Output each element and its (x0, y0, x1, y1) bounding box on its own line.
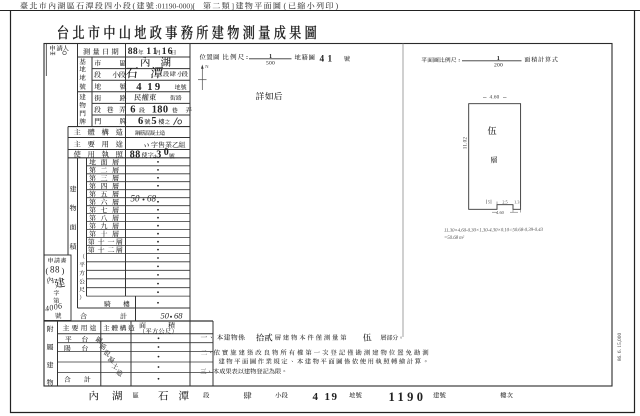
svg-text:): ) (336, 2, 339, 11)
svg-text:88: 88 (128, 46, 138, 57)
svg-text:(: ( (133, 2, 136, 11)
svg-text::01190-000)[: :01190-000)[ (156, 2, 196, 11)
svg-text:1190: 1190 (389, 390, 427, 404)
svg-text::: : (458, 58, 460, 64)
svg-text:1: 1 (269, 53, 272, 60)
svg-text:=50.68 m²: =50.68 m² (444, 235, 465, 241)
svg-text:]: ] (232, 2, 235, 11)
svg-text:86. 6. 15,000: 86. 6. 15,000 (617, 333, 623, 362)
svg-text:3: 3 (156, 149, 161, 160)
svg-text:4: 4 (313, 391, 319, 403)
svg-text:500: 500 (266, 61, 275, 67)
svg-text:1: 1 (147, 82, 152, 93)
svg-text:50: 50 (161, 311, 170, 321)
svg-text:4: 4 (136, 82, 142, 93)
svg-text:68: 68 (174, 311, 183, 321)
svg-text:11.30×4.60-0.30×1.30-4.30×0.10: 11.30×4.60-0.30×1.30-4.30×0.10=50.68-0.3… (444, 228, 544, 234)
svg-text:1: 1 (328, 54, 333, 64)
svg-text:50: 50 (131, 194, 141, 204)
svg-text:11: 11 (146, 46, 159, 57)
svg-text:9: 9 (332, 391, 338, 403)
svg-text:88: 88 (130, 149, 141, 160)
svg-text:6: 6 (130, 105, 135, 116)
svg-text:200: 200 (494, 63, 503, 69)
svg-text:88: 88 (50, 265, 60, 275)
svg-text:11.02: 11.02 (462, 137, 468, 150)
svg-text:4: 4 (320, 54, 325, 64)
svg-text:6: 6 (138, 116, 143, 127)
svg-text:180: 180 (152, 105, 169, 116)
svg-text:(: ( (46, 266, 49, 276)
svg-text:1: 1 (325, 391, 331, 403)
svg-text:5: 5 (488, 199, 490, 204)
svg-text:4.60: 4.60 (490, 95, 500, 101)
svg-text:(: ( (284, 2, 287, 11)
svg-text:2.5: 2.5 (502, 200, 507, 205)
svg-text:): ) (62, 266, 65, 276)
svg-text::: : (246, 54, 248, 61)
svg-text:1: 1 (497, 55, 500, 62)
svg-text:1.3: 1.3 (514, 200, 519, 205)
svg-text:16: 16 (162, 46, 174, 57)
svg-text:N: N (205, 64, 209, 69)
svg-text:4.60: 4.60 (496, 210, 504, 215)
svg-text:5: 5 (151, 116, 156, 127)
svg-text:0: 0 (164, 147, 169, 158)
svg-text:9: 9 (155, 82, 160, 93)
svg-text:68: 68 (147, 194, 157, 204)
svg-text:4006: 4006 (44, 301, 63, 313)
